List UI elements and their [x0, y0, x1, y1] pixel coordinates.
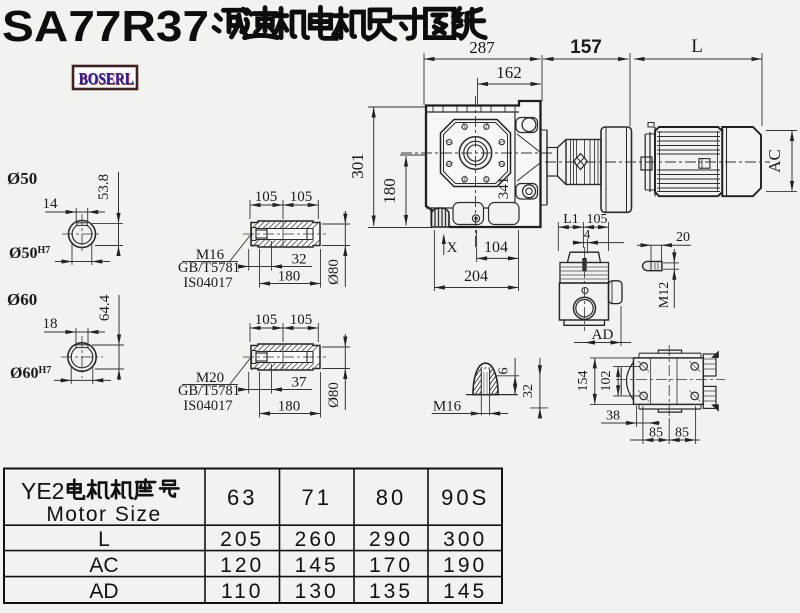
- svg-text:14: 14: [43, 196, 59, 212]
- svg-text:YE2: YE2: [21, 478, 64, 504]
- svg-text:104: 104: [484, 239, 508, 256]
- svg-text:105: 105: [290, 189, 313, 205]
- svg-text:260: 260: [295, 528, 339, 551]
- svg-text:L: L: [691, 36, 703, 57]
- svg-text:GB/T5781: GB/T5781: [178, 260, 240, 276]
- svg-text:M12: M12: [657, 282, 672, 308]
- svg-text:64.4: 64.4: [97, 294, 113, 321]
- svg-text:IS04017: IS04017: [183, 398, 232, 414]
- svg-text:300: 300: [443, 528, 487, 551]
- svg-text:205: 205: [220, 528, 264, 551]
- svg-text:Motor Size: Motor Size: [46, 503, 161, 526]
- svg-text:170: 170: [369, 554, 413, 577]
- svg-text:287: 287: [469, 38, 495, 57]
- svg-text:135: 135: [369, 580, 413, 603]
- svg-text:63: 63: [227, 485, 257, 510]
- svg-text:AD: AD: [89, 580, 118, 603]
- svg-text:L: L: [98, 528, 110, 551]
- svg-text:80: 80: [376, 485, 406, 510]
- svg-text:341: 341: [496, 177, 512, 200]
- svg-text:32: 32: [292, 252, 307, 268]
- svg-text:6: 6: [497, 368, 512, 375]
- svg-text:290: 290: [369, 528, 413, 551]
- svg-text:X: X: [447, 240, 458, 256]
- svg-text:105: 105: [290, 312, 313, 328]
- svg-text:90S: 90S: [441, 485, 489, 510]
- svg-text:71: 71: [301, 485, 331, 510]
- svg-text:85: 85: [649, 426, 663, 441]
- svg-text:L1: L1: [563, 212, 579, 227]
- svg-text:105: 105: [255, 189, 278, 205]
- svg-text:85: 85: [675, 426, 689, 441]
- svg-text:180: 180: [278, 269, 301, 285]
- svg-text:110: 110: [221, 580, 263, 603]
- svg-text:204: 204: [464, 268, 488, 285]
- svg-text:Ø80: Ø80: [326, 259, 342, 285]
- svg-text:154: 154: [576, 371, 591, 392]
- svg-text:102: 102: [599, 371, 614, 392]
- svg-text:AC: AC: [765, 149, 784, 173]
- svg-text:GB/T5781: GB/T5781: [178, 383, 240, 399]
- svg-text:162: 162: [496, 63, 522, 82]
- svg-text:SA77R37: SA77R37: [2, 2, 209, 51]
- svg-text:Ø80: Ø80: [326, 382, 342, 408]
- svg-text:120: 120: [220, 554, 264, 577]
- svg-text:157: 157: [570, 37, 602, 58]
- svg-text:53.8: 53.8: [96, 174, 112, 200]
- svg-text:145: 145: [295, 554, 339, 577]
- svg-text:38: 38: [606, 409, 620, 424]
- svg-text:AD: AD: [592, 327, 614, 343]
- svg-text:180: 180: [380, 178, 399, 204]
- svg-text:AC: AC: [89, 554, 118, 577]
- svg-text:20: 20: [676, 230, 690, 245]
- svg-text:Ø60: Ø60: [7, 290, 37, 309]
- svg-text:37: 37: [292, 375, 308, 391]
- svg-text:105: 105: [255, 312, 278, 328]
- svg-text:301: 301: [348, 153, 367, 179]
- svg-text:18: 18: [43, 316, 58, 332]
- svg-text:105: 105: [587, 212, 608, 227]
- svg-text:IS04017: IS04017: [183, 275, 232, 291]
- svg-text:Ø50: Ø50: [7, 169, 37, 188]
- svg-text:M16: M16: [433, 399, 462, 415]
- svg-text:190: 190: [443, 554, 487, 577]
- svg-text:130: 130: [295, 580, 339, 603]
- svg-text:145: 145: [443, 580, 487, 603]
- svg-text:BOSERL: BOSERL: [79, 70, 134, 89]
- svg-text:32: 32: [521, 384, 536, 398]
- svg-text:180: 180: [278, 399, 301, 415]
